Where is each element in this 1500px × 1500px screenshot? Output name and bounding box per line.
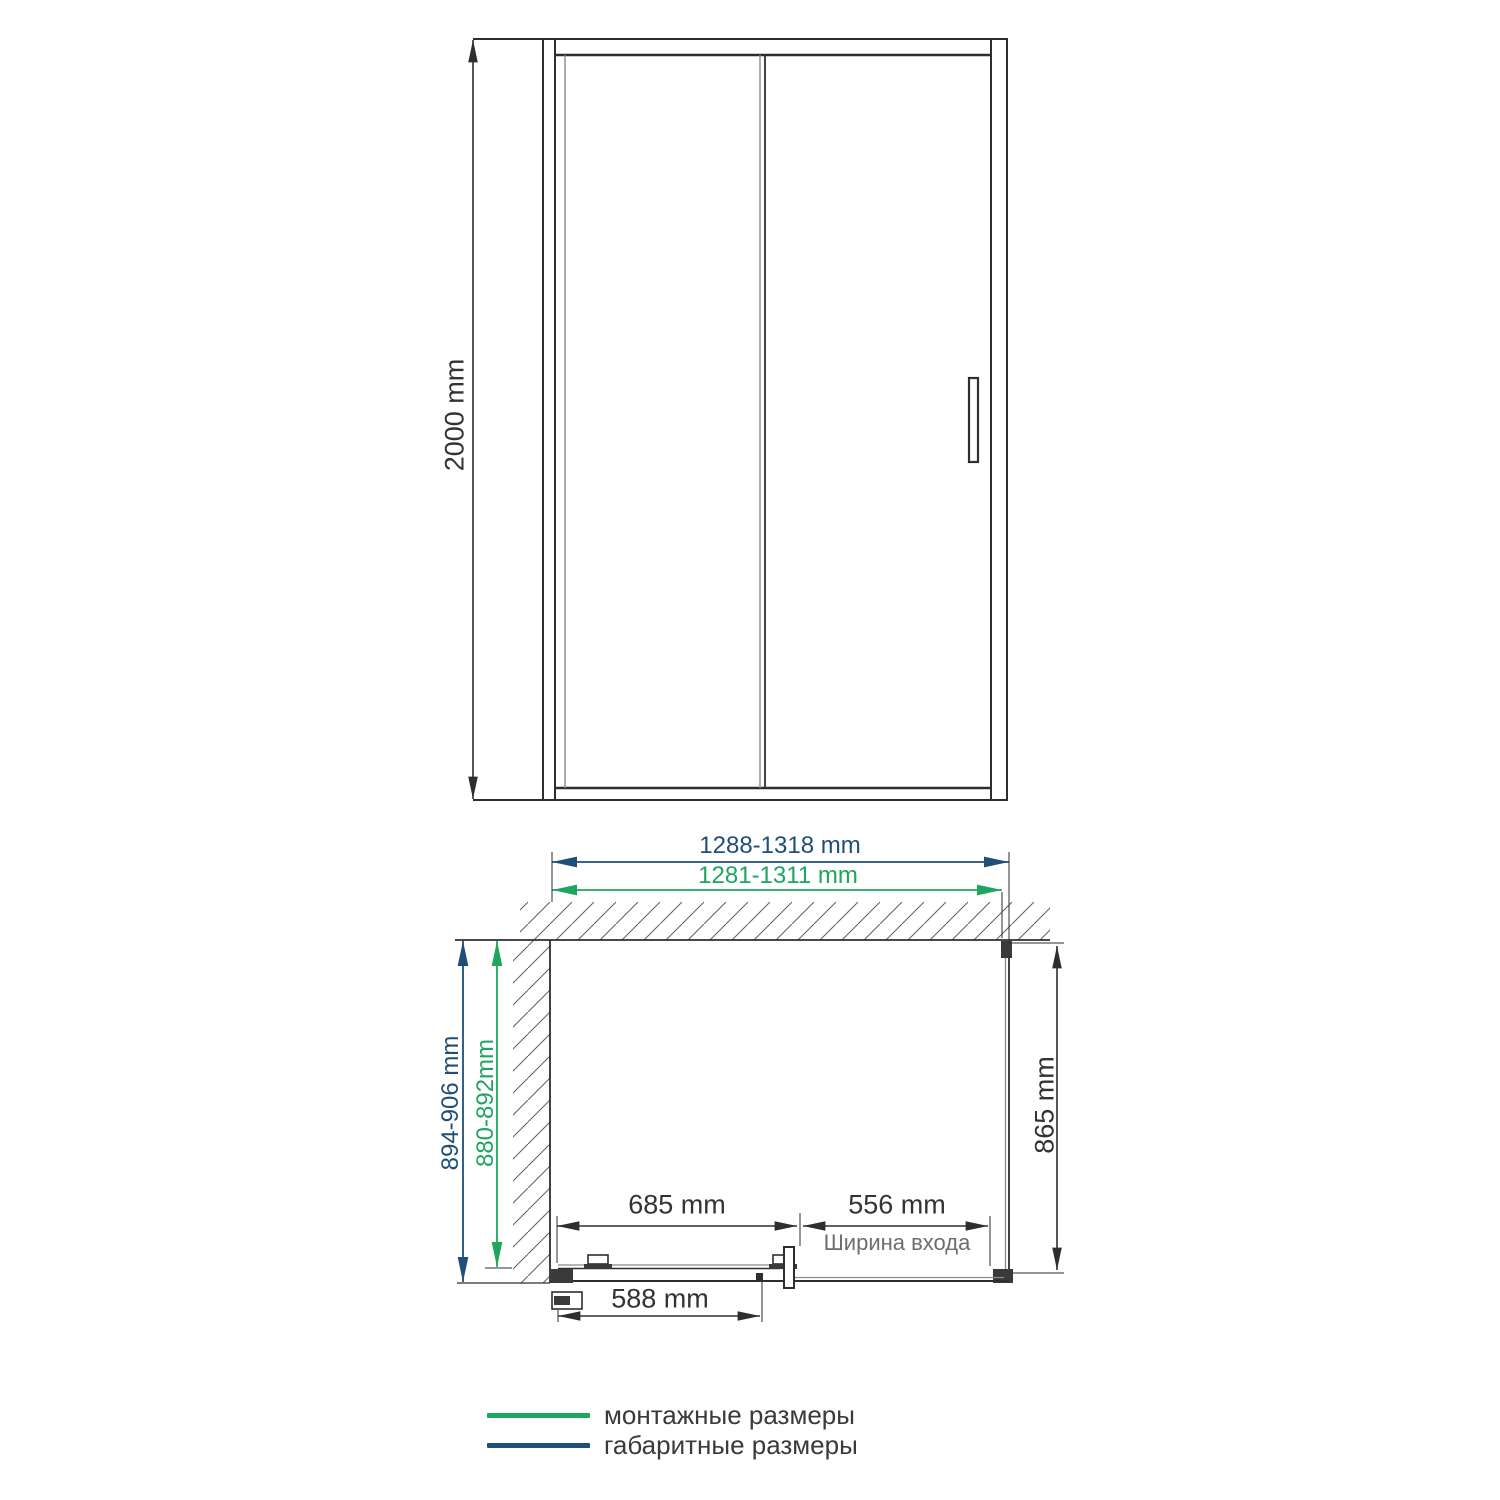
mounting-width-dimension-label: 1281-1311 mm: [698, 862, 858, 890]
door-width-dimension-label: 685 mm: [628, 1190, 726, 1221]
roller-carriage-left: [584, 1255, 612, 1269]
mounting-depth-dimension-label: 880-892mm: [472, 1039, 500, 1167]
legend-label-overall: габаритные размеры: [604, 1430, 858, 1460]
overall-width-dimension-label: 1288-1318 mm: [699, 832, 860, 860]
left-wall-profile: [543, 39, 555, 800]
technical-drawing-page: 2000 mm 1288-1318 mm 1281-1311 mm 894-90…: [0, 0, 1500, 1500]
door-handle: [969, 378, 978, 462]
overall-depth-dimension-label: 894-906 mm: [437, 1036, 465, 1171]
right-wall-profile: [991, 39, 1007, 800]
legend-label-mounting: монтажные размеры: [604, 1400, 855, 1430]
return-panel-top-bracket: [1001, 941, 1012, 958]
front-elevation-view: [473, 39, 1007, 800]
shower-enclosure-drawing: [0, 0, 1500, 1500]
door-handle-plan: [784, 1247, 794, 1288]
side-wall-hatch: [513, 940, 550, 1283]
mounting-dimensions-line-swatch: [487, 1413, 590, 1418]
front-height-dimension-label: 2000 mm: [440, 359, 471, 472]
legend-item-mounting: монтажные размеры: [487, 1400, 858, 1430]
plan-view: [455, 852, 1064, 1322]
glass-width-dimension-label: 588 mm: [611, 1284, 709, 1315]
entry-width-caption: Ширина входа: [824, 1230, 971, 1256]
front-left-corner-bracket: [551, 1269, 573, 1283]
side-depth-dimension-label: 865 mm: [1030, 1056, 1061, 1154]
overall-dimensions-line-swatch: [487, 1443, 590, 1448]
legend-item-overall: габаритные размеры: [487, 1430, 858, 1460]
entry-width-dimension-label: 556 mm: [848, 1190, 946, 1221]
legend: монтажные размеры габаритные размеры: [487, 1400, 858, 1460]
wall-profile-adjuster: [552, 1292, 582, 1309]
back-wall-hatch: [520, 902, 1050, 940]
